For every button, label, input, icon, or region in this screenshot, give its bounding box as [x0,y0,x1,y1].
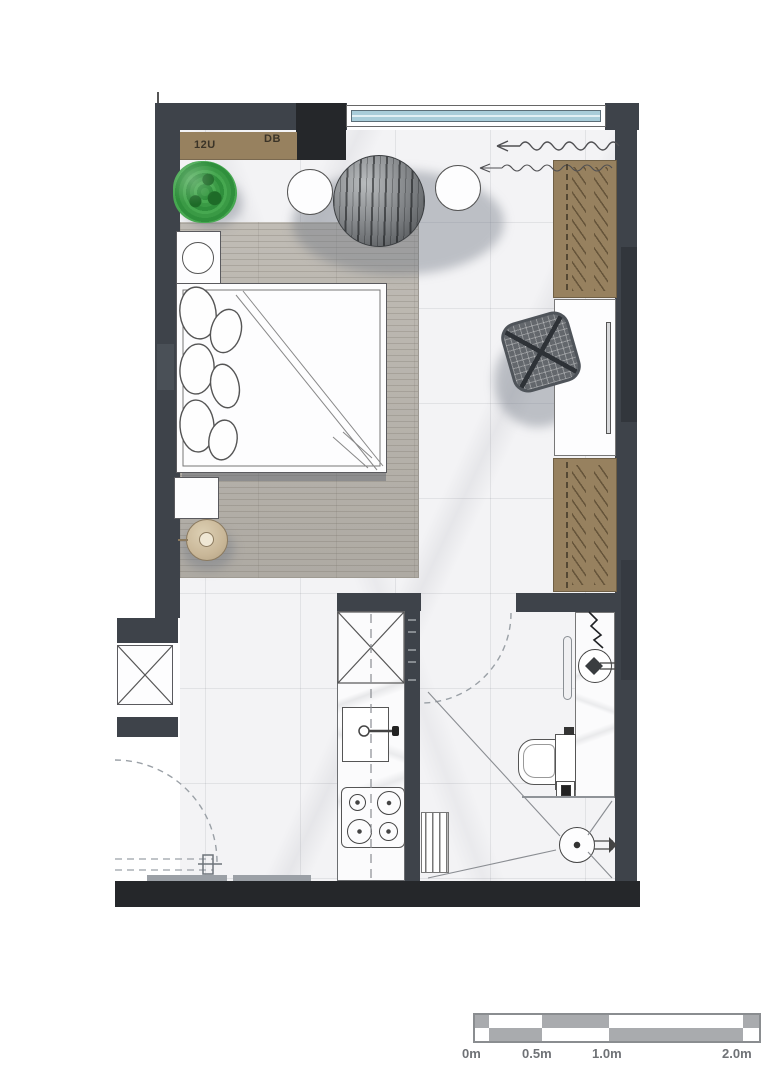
floor-lamp-inner-ring [199,532,214,547]
wardrobe-lower-hangers-2 [594,465,608,585]
toilet-bowl-inner [523,744,555,778]
bedside-table-top [176,231,221,284]
wall-right [615,126,637,905]
toilet-roll [561,785,571,796]
floor-lamp [186,519,228,561]
wall-stub-lower [117,717,178,737]
column-top [296,103,346,160]
cabinet-top: 12U DB [180,132,297,160]
floor-plan-sheet: 12U DB [0,0,765,1080]
wardrobe-upper-hangers-2 [594,167,608,291]
scale-segment [489,1028,542,1041]
stool-right [435,165,481,211]
window-frame [346,105,606,127]
towel-ladder [421,812,449,873]
wardrobe-lower [553,458,617,592]
bedside-table-bottom [174,477,219,519]
potted-plant [173,161,237,223]
wall-right-shade-1 [621,247,637,422]
toilet-flush-valve [564,727,574,735]
cabinet-label-db: DB [264,133,281,145]
scale-label-05m: 0.5m [522,1046,552,1061]
burner-3 [347,819,372,844]
desk-monitor [606,322,611,434]
toilet-roll-holder [556,781,575,798]
wall-right-shade-2 [621,560,637,680]
burner-1 [349,794,366,811]
scale-bar [473,1013,761,1043]
service-shaft [117,645,173,705]
towel-bar [563,636,572,700]
wall-bottom [115,881,640,907]
wall-kitchen-right [404,611,420,881]
scale-segment [609,1028,743,1041]
wardrobe-upper-hangers [572,167,586,291]
scale-label-0m: 0m [462,1046,481,1061]
wall-stub-upper [117,618,178,643]
entry-threshold-1 [147,875,227,881]
scale-segment [542,1015,609,1028]
wardrobe-upper [553,160,617,298]
wardrobe-lower-hangers [572,465,586,585]
kitchen-sink [342,707,389,762]
double-bed [176,283,387,473]
wash-basin [578,649,612,683]
window-glass [351,110,601,122]
entry-threshold-2 [233,875,311,881]
wall-left-panel [157,344,174,390]
scale-segment [475,1015,489,1028]
shower-head [559,827,595,863]
vanity-counter [575,612,615,798]
burner-4 [379,822,398,841]
stool-left [287,169,333,215]
scale-label-10m: 1.0m [592,1046,622,1061]
burner-2 [377,791,401,815]
wall-kitchen-top [337,593,421,611]
bedside-lamp-top [182,242,214,274]
cooktop [341,787,405,848]
wall-bathroom-top [516,593,617,612]
cabinet-label-12u: 12U [194,139,216,151]
scale-label-20m: 2.0m [722,1046,752,1061]
scale-segment [743,1015,759,1028]
dining-table-sphere [333,155,425,247]
